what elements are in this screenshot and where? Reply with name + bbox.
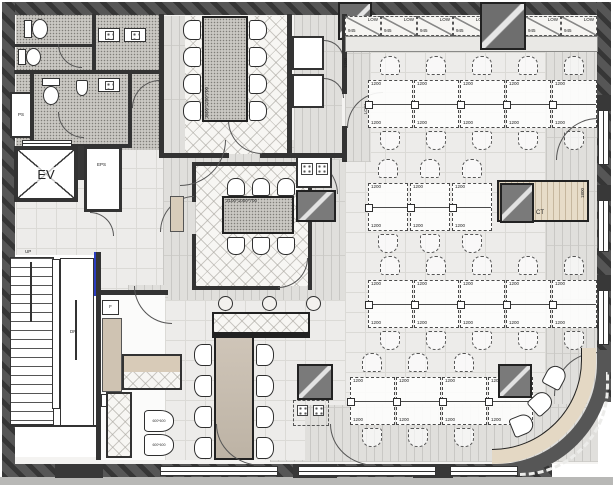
chair [249, 47, 267, 67]
chair [194, 437, 212, 459]
desk-chair [426, 56, 446, 75]
desk-chair [380, 256, 400, 275]
equipment [498, 364, 532, 398]
wall-joint [597, 185, 611, 201]
desk: 12001200 [460, 80, 505, 128]
desk-chair [462, 159, 482, 178]
chair: 600*600 [144, 410, 174, 432]
pipe-shaft-label: PS [18, 113, 24, 118]
equipment [296, 190, 336, 222]
chair [256, 344, 274, 366]
wall-joint [55, 464, 103, 478]
chair [249, 74, 267, 94]
desk: 12001200 [350, 377, 395, 425]
cabinet-band [345, 36, 598, 52]
pipe-shaft: PS [10, 92, 32, 138]
equipment [500, 183, 534, 223]
eps-room: EPS [84, 146, 122, 212]
window [298, 466, 436, 476]
conference-wall-w [159, 14, 164, 158]
desk-chair [454, 428, 474, 447]
stair-stringer [52, 259, 60, 409]
desk-chair [378, 234, 398, 253]
kitchenette [296, 156, 332, 188]
toilet [18, 49, 26, 65]
desk-chair [426, 131, 446, 150]
chair [277, 178, 295, 196]
desk-chair [362, 353, 382, 372]
stair-arrow [30, 262, 32, 322]
chair [256, 375, 274, 397]
desk-chair [472, 131, 492, 150]
sink-icon [316, 163, 328, 175]
window [598, 290, 609, 345]
wall-joint [597, 95, 611, 111]
column [480, 2, 526, 50]
chair [277, 237, 295, 255]
window [160, 466, 278, 476]
low-dim: 945 [420, 29, 428, 34]
desk: 12001200 [368, 80, 413, 128]
desk-chair [518, 56, 538, 75]
desk-chair [462, 234, 482, 253]
stair-landing-edge [10, 425, 96, 427]
desk: 12001200 [368, 183, 408, 231]
chair [252, 237, 270, 255]
low-label: LOW [548, 18, 558, 23]
wall-joint [597, 275, 611, 291]
stair-wall-east [96, 252, 101, 460]
meeting-wall-s [192, 286, 280, 290]
desk-chair [408, 353, 428, 372]
desk-chair [380, 56, 400, 75]
ct-label: CT [536, 210, 544, 216]
desk-chair [472, 256, 492, 275]
stool [262, 296, 277, 311]
low-cabinet: LOW 945 [345, 16, 381, 36]
desk-chair [564, 56, 584, 75]
low-dim: 945 [564, 29, 572, 34]
low-label: LOW [440, 18, 450, 23]
desk: 12001200 [368, 280, 413, 328]
chair [194, 375, 212, 397]
desk: 12001200 [442, 377, 487, 425]
meeting-table-dim: 2100*1000*700 [226, 199, 257, 204]
desk-chair [564, 256, 584, 275]
desk: 12001200 [452, 183, 492, 231]
desk-chair [472, 331, 492, 350]
cafe-counter [212, 312, 310, 334]
urinal [76, 80, 88, 96]
low-dim: 945 [384, 29, 392, 34]
chair: 600*600 [144, 434, 174, 456]
chair [227, 178, 245, 196]
window [598, 200, 609, 252]
chair [194, 406, 212, 428]
restroom-wall [92, 14, 96, 74]
desk-chair [472, 56, 492, 75]
low-dim: 945 [348, 29, 356, 34]
chair [183, 74, 201, 94]
desk-chair [454, 353, 474, 372]
bench [106, 392, 132, 458]
elevator-room: EV [14, 146, 78, 202]
chair [183, 47, 201, 67]
sink [124, 28, 146, 42]
fridge: F [102, 300, 119, 315]
eps-label: EPS [97, 163, 106, 168]
chair [249, 20, 267, 40]
chair-dim: 600*600 [152, 443, 165, 447]
toilet [24, 20, 32, 38]
restroom-wall [14, 70, 162, 74]
chair [183, 101, 201, 121]
desk-chair [408, 428, 428, 447]
desk: 12001200 [410, 183, 450, 231]
desk-chair [426, 256, 446, 275]
desk-chair [426, 331, 446, 350]
low-cabinet: LOW 945 [417, 16, 453, 36]
low-dim: 945 [528, 29, 536, 34]
pantry-cabinet [102, 318, 122, 392]
sink-icon [301, 163, 313, 175]
low-label: LOW [368, 18, 378, 23]
stair-well [60, 258, 94, 426]
appliance-block [293, 400, 329, 426]
restroom-wall [128, 70, 132, 148]
chair [252, 178, 270, 196]
chair [249, 101, 267, 121]
stairs-up-label: UP [25, 250, 31, 255]
desk: 12001200 [552, 280, 597, 328]
locker [292, 36, 324, 70]
office-wall-w2 [342, 126, 347, 162]
chair-dim: 600*600 [152, 419, 165, 423]
desk-chair [380, 131, 400, 150]
desk-chair [380, 331, 400, 350]
low-label: LOW [584, 18, 594, 23]
desk: 12001200 [414, 280, 459, 328]
low-dim: 945 [456, 29, 464, 34]
sidewalk-strip [0, 477, 613, 485]
sink-icon [297, 405, 308, 416]
low-cabinet: LOW 945 [525, 16, 561, 36]
desk-chair [420, 159, 440, 178]
desk: 12001200 [396, 377, 441, 425]
desk: 12001200 [506, 80, 551, 128]
desk-chair [518, 256, 538, 275]
side-desk-dim: 1200 [344, 58, 349, 68]
desk-chair [378, 159, 398, 178]
chair [183, 20, 201, 40]
fridge-label: F [109, 305, 112, 310]
desk-chair [518, 131, 538, 150]
desk: 12001200 [506, 280, 551, 328]
locker [292, 74, 324, 108]
stool [306, 296, 321, 311]
chair [227, 237, 245, 255]
conference-table: 3600*1200*700 [202, 16, 248, 122]
stair-treads [10, 257, 54, 425]
corridor-bench [170, 196, 184, 232]
window [598, 110, 609, 165]
ct-dim: 1800 [581, 188, 586, 198]
restroom-wall [14, 44, 96, 47]
low-cabinet: LOW 945 [561, 16, 597, 36]
desk-chair [420, 234, 440, 253]
toilet [42, 78, 60, 86]
toilet-bowl [43, 86, 59, 105]
stool [218, 296, 233, 311]
meeting-table: 2100*1000*700 [222, 196, 294, 234]
conference-floor-west [163, 16, 185, 154]
stairs-down-label: DN [70, 330, 77, 335]
pantry-counter-hatch [124, 372, 180, 388]
floor-plan: PS EV EPS UP DN 3600*1200*700 [0, 0, 613, 485]
sink-icon [313, 405, 324, 416]
desk: 12001200 [460, 280, 505, 328]
chair [194, 344, 212, 366]
window [450, 466, 518, 476]
desk: 12001200 [414, 80, 459, 128]
conference-table-dim: 3600*1200*700 [205, 87, 210, 118]
toilet-bowl [26, 48, 41, 66]
toilet-bowl [32, 19, 48, 39]
conference-wall-s2 [260, 153, 292, 158]
equipment-screen [297, 364, 333, 400]
low-label: LOW [404, 18, 414, 23]
sink [98, 28, 120, 42]
sink [98, 78, 120, 92]
low-cabinet: LOW 945 [381, 16, 417, 36]
elevator-label: EV [36, 167, 55, 182]
